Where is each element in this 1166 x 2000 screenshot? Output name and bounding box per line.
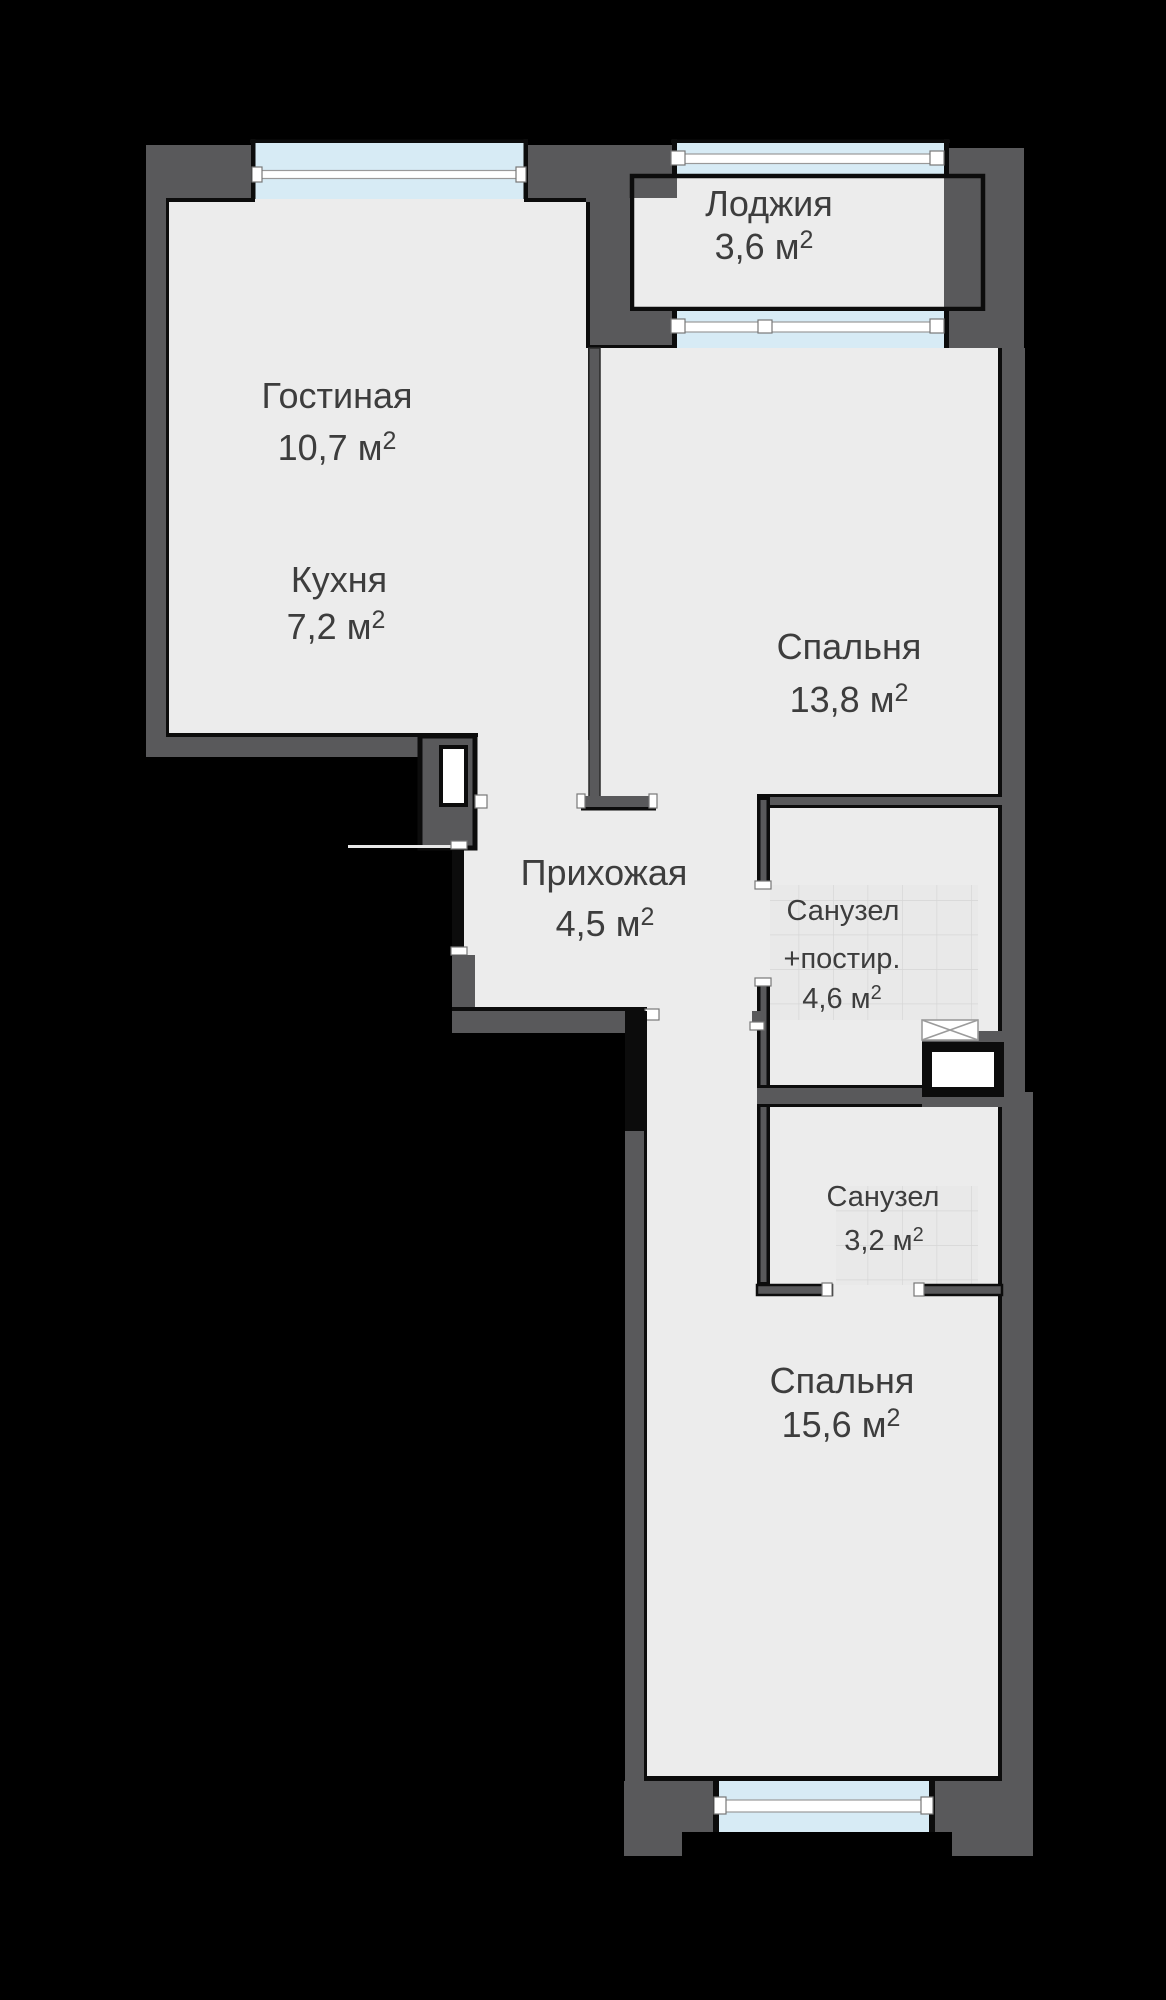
svg-text:+постир.: +постир. (784, 943, 901, 975)
svg-text:3,6 м2: 3,6 м2 (715, 226, 814, 267)
svg-text:15,6 м2: 15,6 м2 (782, 1404, 901, 1445)
svg-text:4,6 м2: 4,6 м2 (802, 982, 881, 1015)
svg-text:10,7 м2: 10,7 м2 (278, 427, 397, 468)
svg-text:7,2 м2: 7,2 м2 (287, 606, 386, 647)
svg-text:Санузел: Санузел (827, 1181, 940, 1213)
svg-text:13,8 м2: 13,8 м2 (790, 679, 909, 720)
svg-text:Спальня: Спальня (777, 626, 922, 667)
svg-text:Кухня: Кухня (291, 559, 387, 600)
svg-text:Гостиная: Гостиная (261, 375, 412, 416)
svg-text:Санузел: Санузел (787, 895, 900, 927)
svg-text:3,2 м2: 3,2 м2 (844, 1224, 923, 1257)
svg-text:Спальня: Спальня (770, 1360, 915, 1401)
svg-text:4,5 м2: 4,5 м2 (556, 903, 655, 944)
svg-text:Лоджия: Лоджия (705, 183, 833, 224)
svg-text:Прихожая: Прихожая (521, 852, 688, 893)
